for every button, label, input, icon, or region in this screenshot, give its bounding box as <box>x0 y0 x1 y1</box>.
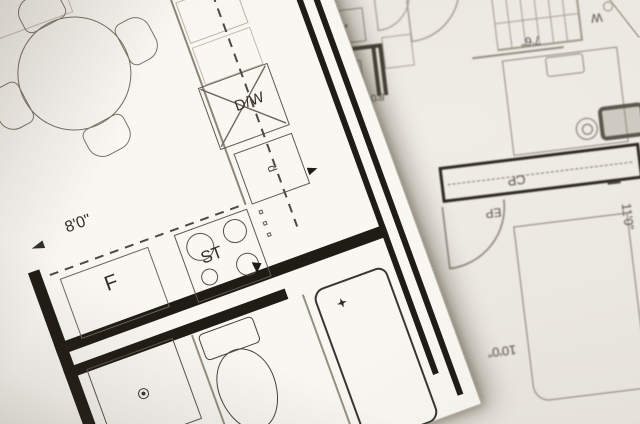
door-swing-arc <box>436 195 516 275</box>
washer-label: W <box>590 10 603 25</box>
knob-dot <box>267 232 272 237</box>
leader-arrow <box>307 164 319 175</box>
dimension-7ft6: 7'6" <box>520 33 541 49</box>
knob-dot <box>263 221 268 226</box>
door-swing-arc <box>370 0 417 36</box>
photo-two-floorplan-sheets: CP EP 11'0" 10'0" W 7'6" d 8'0" <box>0 0 640 424</box>
dimension-arrow <box>30 240 45 252</box>
closet-label: CP <box>507 172 527 189</box>
knob-dot <box>258 209 263 214</box>
room-outline <box>513 213 640 403</box>
drawer-box: d <box>233 133 310 205</box>
nightstand <box>597 102 640 141</box>
dimension-tick <box>608 181 621 185</box>
dimension-8ft: 8'0" <box>45 205 111 244</box>
fixture-inner-circle <box>581 123 593 135</box>
shower-base <box>86 338 202 424</box>
